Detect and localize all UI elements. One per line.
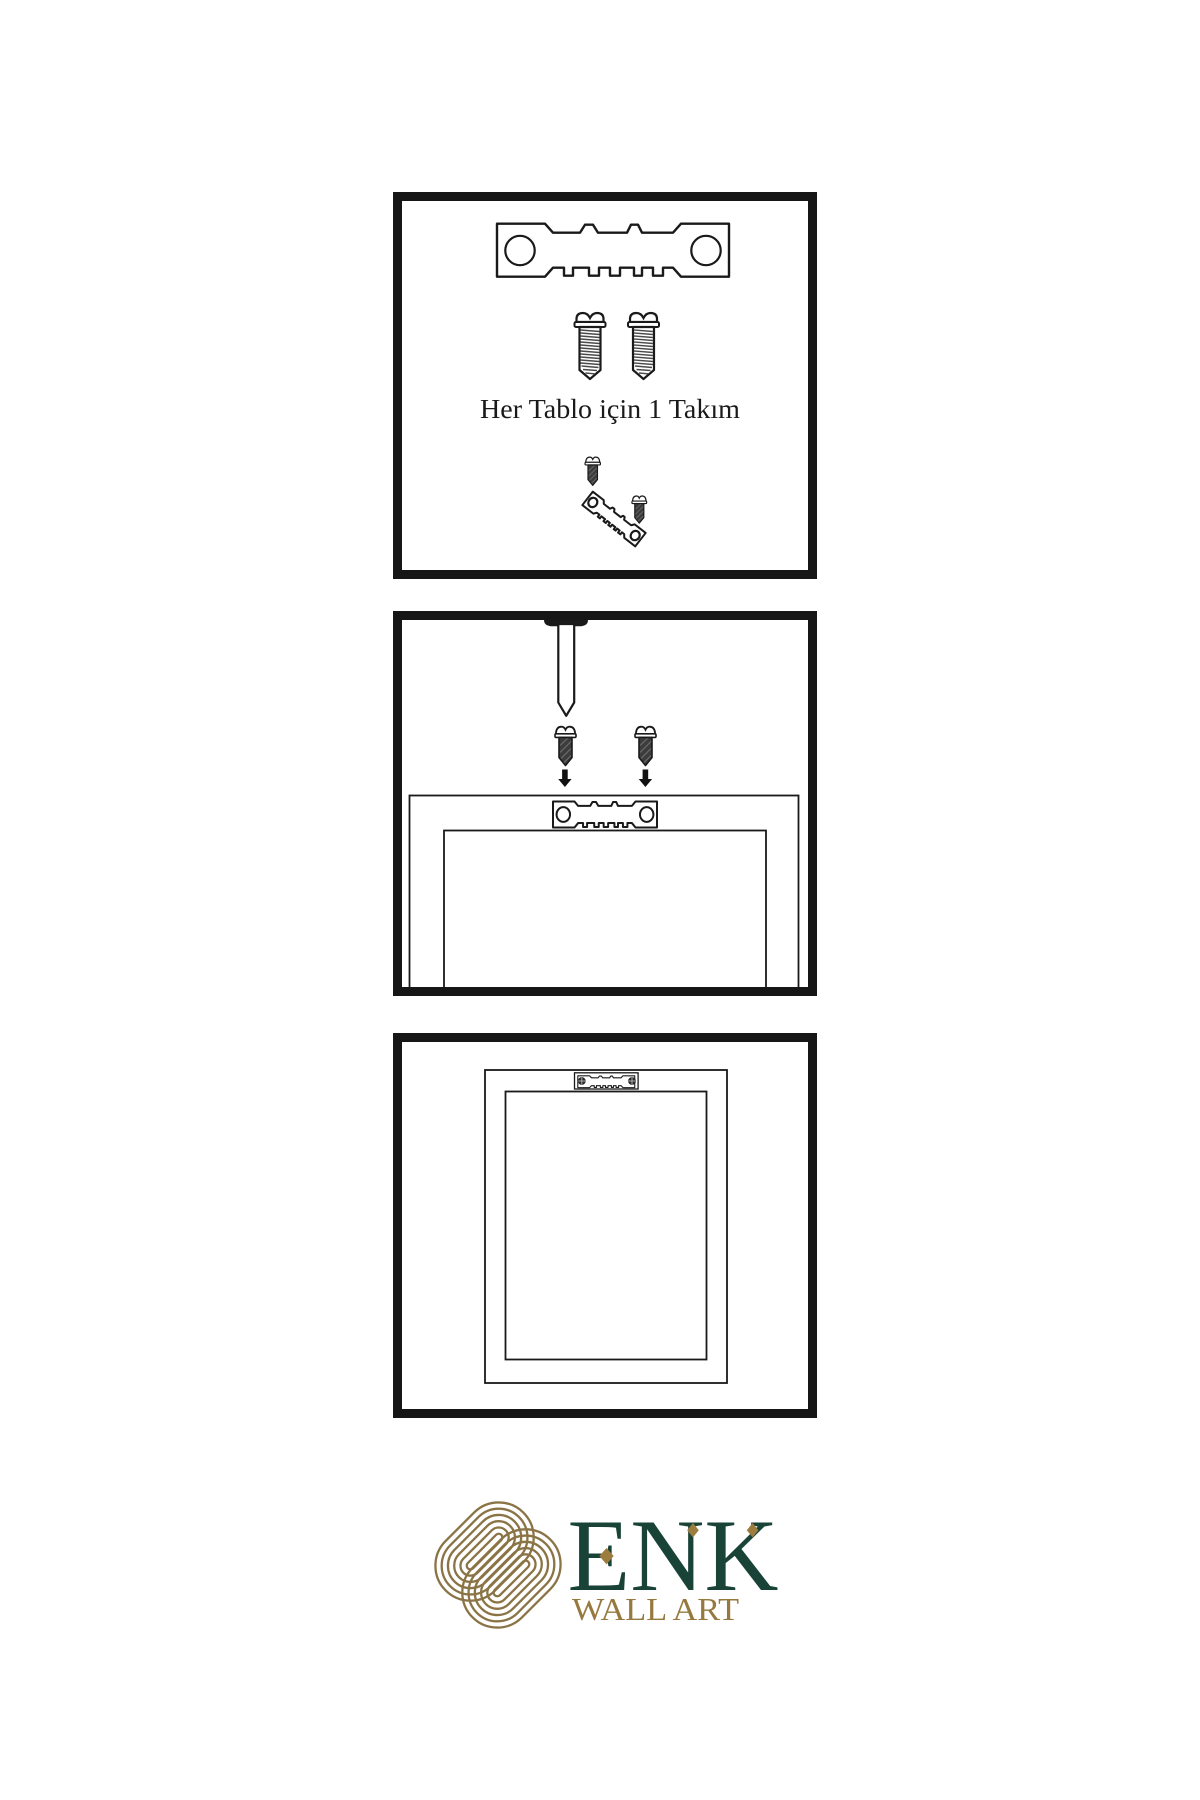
svg-text:Her Tablo için 1 Takım: Her Tablo için 1 Takım [480, 394, 740, 424]
svg-text:WALL ART: WALL ART [572, 1591, 739, 1627]
